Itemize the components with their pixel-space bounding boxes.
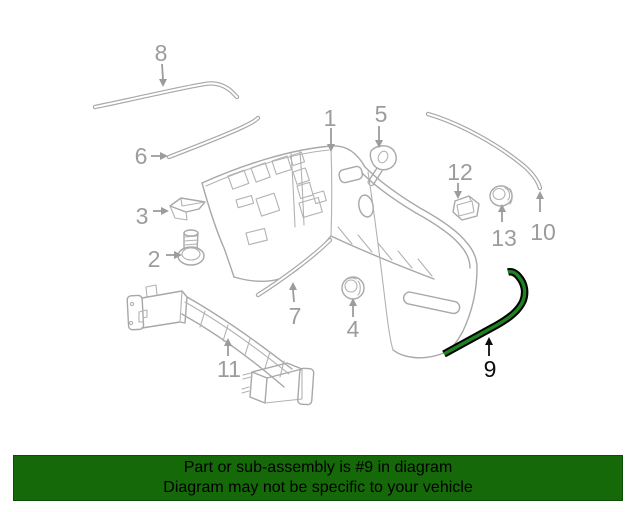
callout-2: 2 <box>148 246 182 272</box>
part-1-bumper-cover <box>202 146 477 358</box>
part-4-grommet <box>342 277 364 299</box>
part-10-molding-strip <box>428 114 540 188</box>
callout-12-label: 12 <box>447 159 473 185</box>
callout-3: 3 <box>136 203 169 229</box>
callout-12: 12 <box>447 159 473 199</box>
part-5-clip <box>368 146 396 186</box>
part-6-molding-strip <box>169 118 258 157</box>
callout-7: 7 <box>289 282 302 329</box>
callout-11-label: 11 <box>217 356 241 382</box>
callout-4: 4 <box>347 298 360 342</box>
callout-2-label: 2 <box>148 246 161 272</box>
part-2-bolt <box>178 230 204 265</box>
status-banner-line2: Diagram may not be specific to your vehi… <box>163 478 472 498</box>
callout-5-label: 5 <box>375 101 388 127</box>
part-8-molding-strip <box>95 83 237 107</box>
callout-8: 8 <box>155 40 168 87</box>
callout-4-label: 4 <box>347 316 360 342</box>
callout-11: 11 <box>217 338 241 382</box>
callout-1-label: 1 <box>324 105 337 131</box>
part-11-reinforcement-bar <box>127 285 314 405</box>
callout-13: 13 <box>491 204 517 251</box>
callout-6: 6 <box>135 143 168 169</box>
part-13-grommet <box>490 186 512 206</box>
callout-9-label: 9 <box>484 356 497 382</box>
status-banner-line1: Part or sub-assembly is #9 in diagram <box>184 458 453 478</box>
callout-10-label: 10 <box>530 219 556 245</box>
part-3-clip <box>170 198 205 220</box>
callout-8-label: 8 <box>155 40 168 66</box>
bumper-vent-hatches <box>338 227 432 276</box>
callout-3-label: 3 <box>136 203 149 229</box>
callout-10: 10 <box>530 191 556 245</box>
callout-6-label: 6 <box>135 143 148 169</box>
status-banner: Part or sub-assembly is #9 in diagram Di… <box>13 455 623 501</box>
bumper-parts-diagram: 1 2 3 4 5 6 7 <box>0 0 640 512</box>
callout-1: 1 <box>324 105 337 152</box>
callout-5: 5 <box>375 101 388 148</box>
part-12-sensor <box>453 196 479 220</box>
callout-7-label: 7 <box>289 303 302 329</box>
callout-9-highlighted: 9 <box>484 337 497 382</box>
callout-13-label: 13 <box>491 225 517 251</box>
parts-diagram-page: 1 2 3 4 5 6 7 <box>0 0 640 512</box>
